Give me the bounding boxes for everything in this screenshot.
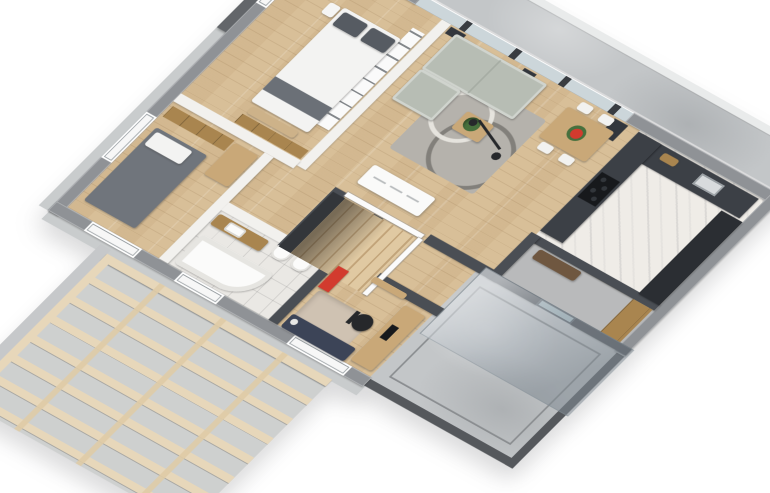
floorplan-3d-view (0, 0, 770, 493)
floorplan-scene (0, 0, 770, 493)
